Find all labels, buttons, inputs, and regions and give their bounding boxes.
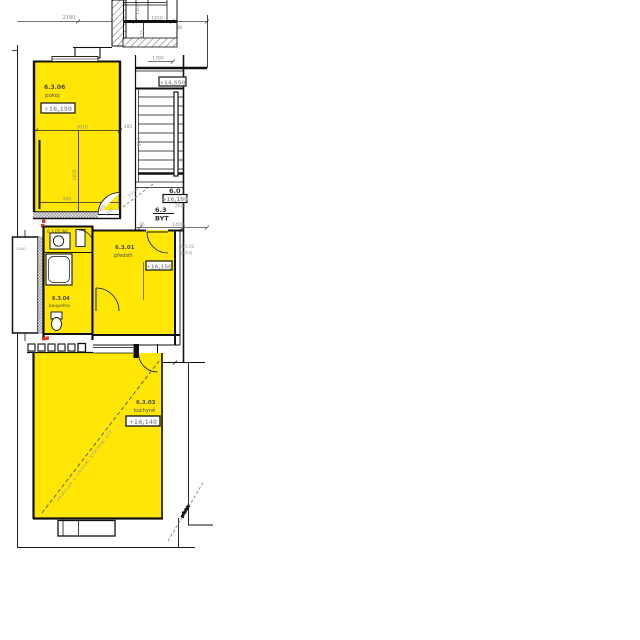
landing-dim: 2610 — [175, 203, 186, 208]
room-predsin-name: předsíň — [114, 252, 133, 259]
dim-stair-width: 1390 — [152, 56, 164, 62]
room-predsin-level: +16,150 — [146, 265, 172, 271]
dim-stair-run: 863 — [137, 138, 143, 147]
room-kuchyne: PRŮVLAK V ÚROVNI STROPNÍ KCE 6.3.03 kuch… — [27, 344, 163, 536]
room-neighbour: 6.3.02 pokoj — [181, 244, 195, 255]
cistern-fixture — [76, 230, 85, 247]
room-kuchyne-code: 6.3.03 — [136, 400, 156, 406]
dim-pokoj-seg: 900 — [63, 197, 72, 203]
room-wc: 6.3.05 WC — [41, 224, 93, 252]
room-neighbour-name: pokoj — [181, 250, 192, 255]
red-marker — [42, 220, 45, 223]
room-kuchyne-name: kuchyně — [134, 407, 155, 414]
room-koupelna-code: 6.3.04 — [52, 296, 70, 302]
railing-post — [38, 344, 45, 351]
shaft-hatch-strip — [38, 237, 43, 333]
dim-landing-seg2: 1400 — [172, 222, 184, 228]
floorplan-canvas: 2190 1100 1850 475 60 6.3.06 pokoj — [0, 0, 640, 640]
railing-post — [28, 344, 35, 351]
bathtub-fixture — [46, 254, 72, 285]
washing-machine-drum — [53, 236, 63, 246]
wall-band — [33, 212, 98, 219]
dim-shaft-gap: 485 — [124, 124, 133, 130]
flat-code: 6.3 — [155, 206, 167, 214]
room-pokoj-level: +16,150 — [44, 106, 72, 113]
flat-type: BYT — [155, 215, 169, 223]
red-marker — [42, 337, 45, 340]
dim-top-overall: 2190 — [63, 15, 76, 21]
handrail — [174, 92, 178, 176]
railing-post — [78, 344, 86, 353]
room-pokoj-name: pokoj — [45, 93, 60, 99]
room-kuchyne-area — [33, 353, 163, 518]
room-pokoj: 6.3.06 pokoj +16,150 2610 485 2435 900 8… — [33, 57, 132, 223]
shaft-rect — [13, 237, 39, 333]
dim-top-w2: 1850 — [151, 16, 163, 22]
red-marker — [46, 337, 49, 340]
dim-top-w3: 475 — [140, 30, 146, 39]
railing-posts — [28, 337, 86, 353]
floor-code: 6.0 — [169, 187, 181, 195]
room-neighbour-code: 6.3.02 — [181, 244, 195, 249]
dim-top-w1: 1100 — [135, 3, 141, 15]
room-predsin: 6.3.01 předsíň +16,150 — [93, 230, 183, 345]
right-structure: průvlak — [163, 361, 213, 548]
room-pokoj-code: 6.3.06 — [44, 84, 65, 91]
railing-post — [68, 344, 75, 351]
toilet-fixture — [52, 318, 62, 331]
dim-shaft-width: 1400 — [16, 246, 26, 251]
wall-block — [134, 344, 139, 358]
landing-level: +14,550 — [160, 81, 186, 87]
room-koupelna-name: koupelna — [49, 303, 70, 309]
window-bay — [58, 521, 115, 537]
room-predsin-code: 6.3.01 — [115, 245, 135, 251]
railing-post — [58, 344, 65, 351]
dim-pokoj-depth: 2435 — [72, 169, 78, 181]
dim-top-w4: 60 — [177, 25, 183, 30]
room-kuchyne-level: +16,140 — [129, 419, 157, 426]
dim-landing-seg1: 60 — [139, 222, 145, 227]
railing-post — [48, 344, 55, 351]
shaft: 1400 — [13, 230, 43, 341]
dim-pokoj-width: 2610 — [76, 125, 88, 131]
hatched-wall — [123, 38, 177, 47]
floorplan-page: 2190 1100 1850 475 60 6.3.06 pokoj — [0, 0, 640, 640]
